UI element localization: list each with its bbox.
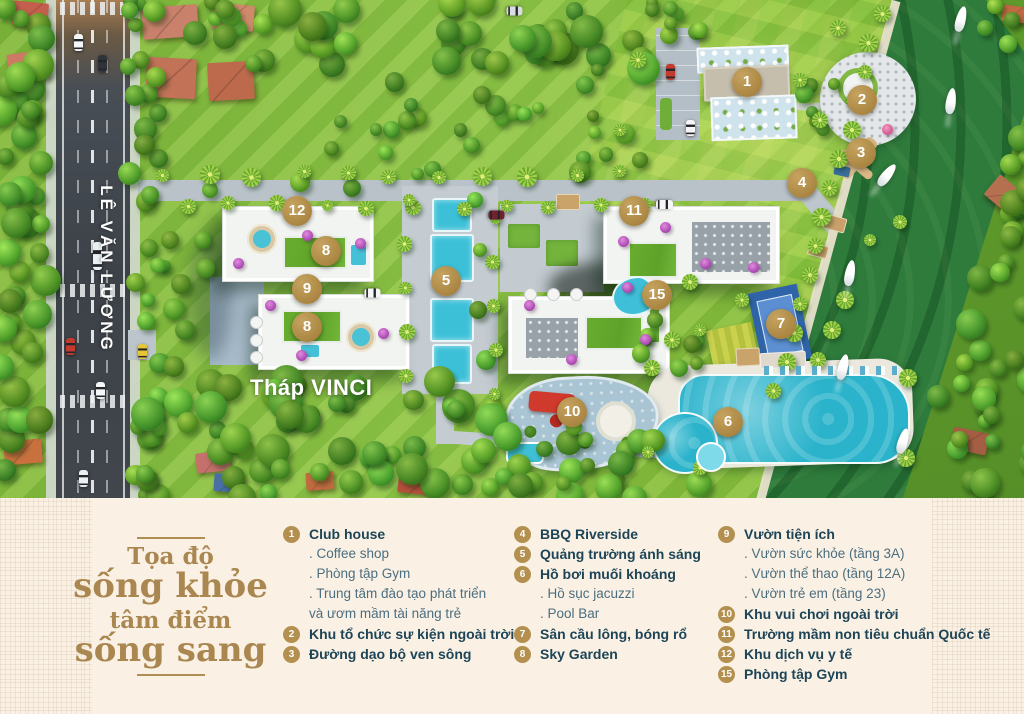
map-marker-5[interactable]: 5 xyxy=(431,266,461,296)
road-edge-line xyxy=(62,0,64,498)
legend-item-label: Sky Garden xyxy=(540,646,618,662)
fountain xyxy=(250,316,263,329)
map-marker-8[interactable]: 8 xyxy=(292,312,322,342)
tree xyxy=(454,123,468,137)
flower-bed xyxy=(660,222,671,233)
tree xyxy=(134,135,154,155)
plaza-pavilion xyxy=(556,194,580,210)
road-edge-line xyxy=(123,0,125,498)
tree xyxy=(324,141,339,156)
tree xyxy=(398,111,416,129)
legend-number-badge: 1 xyxy=(283,526,300,543)
tree xyxy=(1000,226,1021,247)
legend-sub-item: . Vườn thể thao (tầng 12A) xyxy=(718,564,990,584)
legend-item-label: BBQ Riverside xyxy=(540,526,638,542)
tree xyxy=(177,412,198,433)
tree xyxy=(595,474,622,498)
tree xyxy=(175,320,195,340)
jacuzzi xyxy=(696,442,726,472)
tree xyxy=(260,484,277,498)
palm-tree xyxy=(822,180,837,195)
map-marker-11[interactable]: 11 xyxy=(619,196,649,226)
tree xyxy=(131,397,164,430)
tree xyxy=(310,463,329,482)
car xyxy=(686,120,695,136)
tree xyxy=(118,162,141,185)
tree xyxy=(339,470,362,493)
legend-item-label: Khu tổ chức sự kiện ngoài trời xyxy=(309,626,514,642)
legend-number-badge: 4 xyxy=(514,526,531,543)
map-marker-10[interactable]: 10 xyxy=(557,397,587,427)
tree xyxy=(411,168,423,180)
palm-tree xyxy=(457,202,471,216)
legend-item-label: Đường dạo bộ ven sông xyxy=(309,646,471,662)
tree xyxy=(970,468,1000,498)
legend-column-2: 4BBQ Riverside5Quảng trường ánh sáng6Hồ … xyxy=(514,524,701,664)
tree xyxy=(268,0,302,27)
tree xyxy=(953,375,970,392)
palm-tree xyxy=(358,201,373,216)
fountain xyxy=(547,288,560,301)
legend-item-label: Khu vui chơi ngoài trời xyxy=(744,606,898,622)
palm-tree xyxy=(613,165,626,178)
tree xyxy=(438,0,466,17)
club-pool-south xyxy=(710,94,797,141)
map-marker-12[interactable]: 12 xyxy=(282,196,312,226)
legend-item-label: Phòng tập Gym xyxy=(744,666,847,682)
car xyxy=(79,470,88,487)
legend-item-label: Quảng trường ánh sáng xyxy=(540,546,701,562)
tree xyxy=(1005,350,1024,369)
tree xyxy=(1004,12,1020,28)
plaza-lawn xyxy=(546,240,578,266)
palm-tree xyxy=(843,121,861,139)
palm-tree xyxy=(489,388,500,399)
tree xyxy=(570,15,603,48)
palm-tree xyxy=(823,321,841,339)
car xyxy=(138,344,147,359)
tree xyxy=(334,115,347,128)
tree xyxy=(137,312,155,330)
tree xyxy=(983,406,1000,423)
legend-item-label: Club house xyxy=(309,526,385,542)
palm-tree xyxy=(403,194,415,206)
tree xyxy=(517,107,532,122)
tree xyxy=(580,458,595,473)
legend-sub-item: . Vườn trẻ em (tầng 23) xyxy=(718,584,990,604)
tree xyxy=(404,98,418,112)
palm-tree xyxy=(489,343,503,357)
tree xyxy=(136,465,154,483)
title-rule-bottom xyxy=(137,674,205,676)
palm-tree xyxy=(858,65,872,79)
palm-tree xyxy=(766,383,781,398)
legend-sub-item: . Trung tâm đào tạo phát triển xyxy=(283,584,514,604)
tree xyxy=(150,258,165,273)
tree xyxy=(22,342,43,363)
legend-item: 7Sân cầu lông, bóng rổ xyxy=(514,624,701,644)
legend-number-badge: 2 xyxy=(283,626,300,643)
tree xyxy=(334,32,357,55)
flower-bed xyxy=(700,258,711,269)
tree xyxy=(121,2,138,19)
palm-tree xyxy=(156,169,169,182)
tree xyxy=(328,437,356,465)
tree xyxy=(1008,125,1024,151)
title-line-4: sống sang xyxy=(58,634,283,667)
palm-tree xyxy=(181,199,196,214)
tree xyxy=(276,400,304,428)
tree xyxy=(370,123,382,135)
legend-item-label: Sân cầu lông, bóng rổ xyxy=(540,626,687,642)
tree xyxy=(599,147,614,162)
tree xyxy=(463,137,480,154)
tree xyxy=(690,356,703,369)
flower-bed xyxy=(882,124,893,135)
flower-bed xyxy=(566,354,577,365)
tree xyxy=(146,67,166,87)
car xyxy=(98,55,107,72)
roof-pool-deck-a xyxy=(247,224,277,254)
flower-bed xyxy=(355,238,366,249)
legend-number-badge: 11 xyxy=(718,626,735,643)
tree xyxy=(141,186,158,203)
tree xyxy=(663,1,678,16)
tree xyxy=(29,151,53,175)
legend-sub-item: và ươm mầm tài năng trẻ xyxy=(283,604,514,624)
palm-tree xyxy=(473,167,492,186)
tree xyxy=(622,486,647,498)
tree xyxy=(591,64,603,76)
tree xyxy=(0,148,14,165)
crosswalk xyxy=(60,2,126,15)
palm-tree xyxy=(432,171,445,184)
tree xyxy=(452,474,472,494)
tree xyxy=(271,459,290,478)
car xyxy=(507,7,523,16)
legend-column-1: 1Club house. Coffee shop. Phòng tập Gym.… xyxy=(283,524,514,664)
plaza-lawn xyxy=(508,224,540,248)
palm-tree xyxy=(298,165,311,178)
palm-tree xyxy=(594,198,608,212)
tree xyxy=(556,476,571,491)
shrub xyxy=(524,425,537,438)
tree xyxy=(1000,154,1021,175)
legend-number-badge: 10 xyxy=(718,606,735,623)
tree xyxy=(927,385,949,407)
tree xyxy=(378,145,393,160)
tree xyxy=(298,12,327,41)
legend-item-label: Vườn tiện ích xyxy=(744,526,835,542)
tree xyxy=(647,312,662,327)
tree xyxy=(161,231,179,249)
palm-tree xyxy=(322,200,333,211)
palm-tree xyxy=(381,170,396,185)
palm-tree xyxy=(485,255,500,270)
map-marker-2[interactable]: 2 xyxy=(847,85,877,115)
legend-item: 10Khu vui chơi ngoài trời xyxy=(718,604,990,624)
tree xyxy=(0,376,30,406)
fountain xyxy=(524,288,537,301)
palm-tree xyxy=(399,282,411,294)
palm-tree xyxy=(694,324,706,336)
map-marker-15[interactable]: 15 xyxy=(642,280,672,310)
palm-tree xyxy=(397,236,413,252)
tree xyxy=(343,179,361,197)
legend-sub-item: . Hồ sục jacuzzi xyxy=(514,584,701,604)
title-line-2: sống khỏe xyxy=(58,570,283,603)
tree xyxy=(0,459,16,482)
tree xyxy=(632,152,648,168)
car xyxy=(489,211,505,220)
map-marker-4[interactable]: 4 xyxy=(787,168,817,198)
tree xyxy=(143,0,165,22)
fountain xyxy=(250,351,263,364)
tree xyxy=(999,35,1017,53)
legend-item: 15Phòng tập Gym xyxy=(718,664,990,684)
masterplan-poster: LÊ VĂN LƯƠNG xyxy=(0,0,1024,714)
palm-tree xyxy=(899,369,917,387)
tree xyxy=(587,110,599,122)
fountain xyxy=(250,334,263,347)
flower-bed xyxy=(378,328,389,339)
legend-item-label: Trường mầm non tiêu chuẩn Quốc tế xyxy=(744,626,990,642)
parking-island xyxy=(660,98,672,130)
tree xyxy=(432,47,460,75)
tree xyxy=(977,20,993,36)
tree xyxy=(508,473,533,498)
palm-tree xyxy=(793,297,807,311)
flower-bed xyxy=(524,300,535,311)
site-map: LÊ VĂN LƯƠNG xyxy=(0,0,1024,498)
tree xyxy=(969,340,991,362)
flower-bed xyxy=(302,230,313,241)
legend-item-label: Hồ bơi muối khoáng xyxy=(540,566,676,582)
map-marker-8[interactable]: 8 xyxy=(311,236,341,266)
flower-bed xyxy=(618,236,629,247)
street-name-label: LÊ VĂN LƯƠNG xyxy=(94,158,116,380)
crosswalk xyxy=(60,395,126,408)
tree xyxy=(457,21,482,46)
tree xyxy=(471,438,496,463)
tree xyxy=(26,406,54,434)
tree xyxy=(195,391,227,423)
tree xyxy=(164,356,185,377)
palm-tree xyxy=(808,238,823,253)
palm-tree xyxy=(571,169,584,182)
map-marker-1[interactable]: 1 xyxy=(732,67,762,97)
section-title: Tọa độ sống khỏe tâm điểm sống sang xyxy=(58,537,283,676)
tree xyxy=(951,431,968,448)
tree xyxy=(128,18,143,33)
tree xyxy=(385,72,404,91)
roof-garden-d xyxy=(585,316,643,350)
tree xyxy=(532,102,544,114)
map-marker-6[interactable]: 6 xyxy=(713,407,743,437)
tree xyxy=(436,19,460,43)
legend-column-3: 9Vườn tiện ích. Vườn sức khỏe (tầng 3A).… xyxy=(718,524,990,684)
tree xyxy=(576,76,594,94)
legend-item: 6Hồ bơi muối khoáng xyxy=(514,564,701,584)
tree xyxy=(956,309,986,339)
flower-bed xyxy=(640,334,651,345)
tree xyxy=(686,471,712,497)
map-marker-3[interactable]: 3 xyxy=(846,138,876,168)
legend-item: 12Khu dịch vụ y tế xyxy=(718,644,990,664)
tree xyxy=(485,51,509,75)
legend-number-badge: 15 xyxy=(718,666,735,683)
legend-item: 2Khu tổ chức sự kiện ngoài trời xyxy=(283,624,514,644)
legend-sub-item: . Pool Bar xyxy=(514,604,701,624)
palm-tree xyxy=(644,360,660,376)
legend-number-badge: 7 xyxy=(514,626,531,643)
car xyxy=(74,34,83,51)
tree xyxy=(220,423,250,453)
palm-tree xyxy=(487,299,501,313)
tree xyxy=(536,441,552,457)
tree xyxy=(396,453,428,485)
car xyxy=(96,382,105,399)
roof-terrace-d xyxy=(526,318,578,358)
legend-item: 1Club house xyxy=(283,524,514,544)
map-marker-9[interactable]: 9 xyxy=(292,274,322,304)
flower-bed xyxy=(748,262,759,273)
crosswalk xyxy=(60,284,126,297)
tree xyxy=(183,21,207,45)
legend-number-badge: 8 xyxy=(514,646,531,663)
car xyxy=(666,64,675,80)
palm-tree xyxy=(682,274,699,291)
legend-item: 5Quảng trường ánh sáng xyxy=(514,544,701,564)
tree xyxy=(795,85,812,102)
legend-number-badge: 5 xyxy=(514,546,531,563)
legend-sub-item: . Vườn sức khỏe (tầng 3A) xyxy=(718,544,990,564)
pool-bar-pavilion xyxy=(736,347,761,366)
tree xyxy=(473,86,491,104)
legend-number-badge: 12 xyxy=(718,646,735,663)
road-lane-dash xyxy=(77,0,79,498)
tree xyxy=(383,121,400,138)
tree xyxy=(141,293,156,308)
legend-item-label: Khu dịch vụ y tế xyxy=(744,646,852,662)
tree xyxy=(5,62,35,92)
palm-tree xyxy=(200,165,220,185)
title-rule-top xyxy=(137,537,205,539)
car xyxy=(66,338,75,355)
palm-tree xyxy=(517,167,537,187)
palm-tree xyxy=(874,6,891,23)
tree xyxy=(125,85,146,106)
legend-item: 9Vườn tiện ích xyxy=(718,524,990,544)
tree xyxy=(578,432,593,447)
tree xyxy=(140,239,158,257)
tree xyxy=(163,298,185,320)
tree xyxy=(447,400,465,418)
legend-number-badge: 3 xyxy=(283,646,300,663)
tree xyxy=(692,22,708,38)
car xyxy=(656,200,673,209)
palm-tree xyxy=(812,112,828,128)
legend-item: 3Đường dạo bộ ven sông xyxy=(283,644,514,664)
sun-loungers xyxy=(764,366,898,375)
flower-bed xyxy=(296,350,307,361)
flower-bed xyxy=(622,282,633,293)
car xyxy=(365,289,381,298)
palm-tree xyxy=(664,332,679,347)
fountain-pool xyxy=(430,298,474,342)
legend-item: 8Sky Garden xyxy=(514,644,701,664)
legend-item: 11Trường mầm non tiêu chuẩn Quốc tế xyxy=(718,624,990,644)
tree xyxy=(126,273,145,292)
map-marker-7[interactable]: 7 xyxy=(766,309,796,339)
tree xyxy=(467,0,496,16)
tree xyxy=(683,335,702,354)
roof-garden-c xyxy=(628,242,678,278)
legend-sub-item: . Phòng tập Gym xyxy=(283,564,514,584)
tree xyxy=(30,265,61,296)
legend-item: 4BBQ Riverside xyxy=(514,524,701,544)
tree xyxy=(1,208,31,238)
legend-sub-item: . Coffee shop xyxy=(283,544,514,564)
palm-tree xyxy=(242,168,261,187)
tree xyxy=(608,451,634,477)
tree xyxy=(245,55,262,72)
flower-bed xyxy=(265,300,276,311)
palm-tree xyxy=(859,34,878,53)
roof-pool-deck-b xyxy=(346,322,376,352)
palm-tree xyxy=(812,208,831,227)
tower-label: Tháp VINCI xyxy=(250,375,372,401)
tree xyxy=(403,390,423,410)
tree xyxy=(0,289,22,313)
tree xyxy=(213,24,238,49)
palm-tree xyxy=(735,293,748,306)
fountain xyxy=(570,288,583,301)
legend-number-badge: 6 xyxy=(514,566,531,583)
tree xyxy=(30,243,49,262)
legend-number-badge: 9 xyxy=(718,526,735,543)
flower-bed xyxy=(233,258,244,269)
